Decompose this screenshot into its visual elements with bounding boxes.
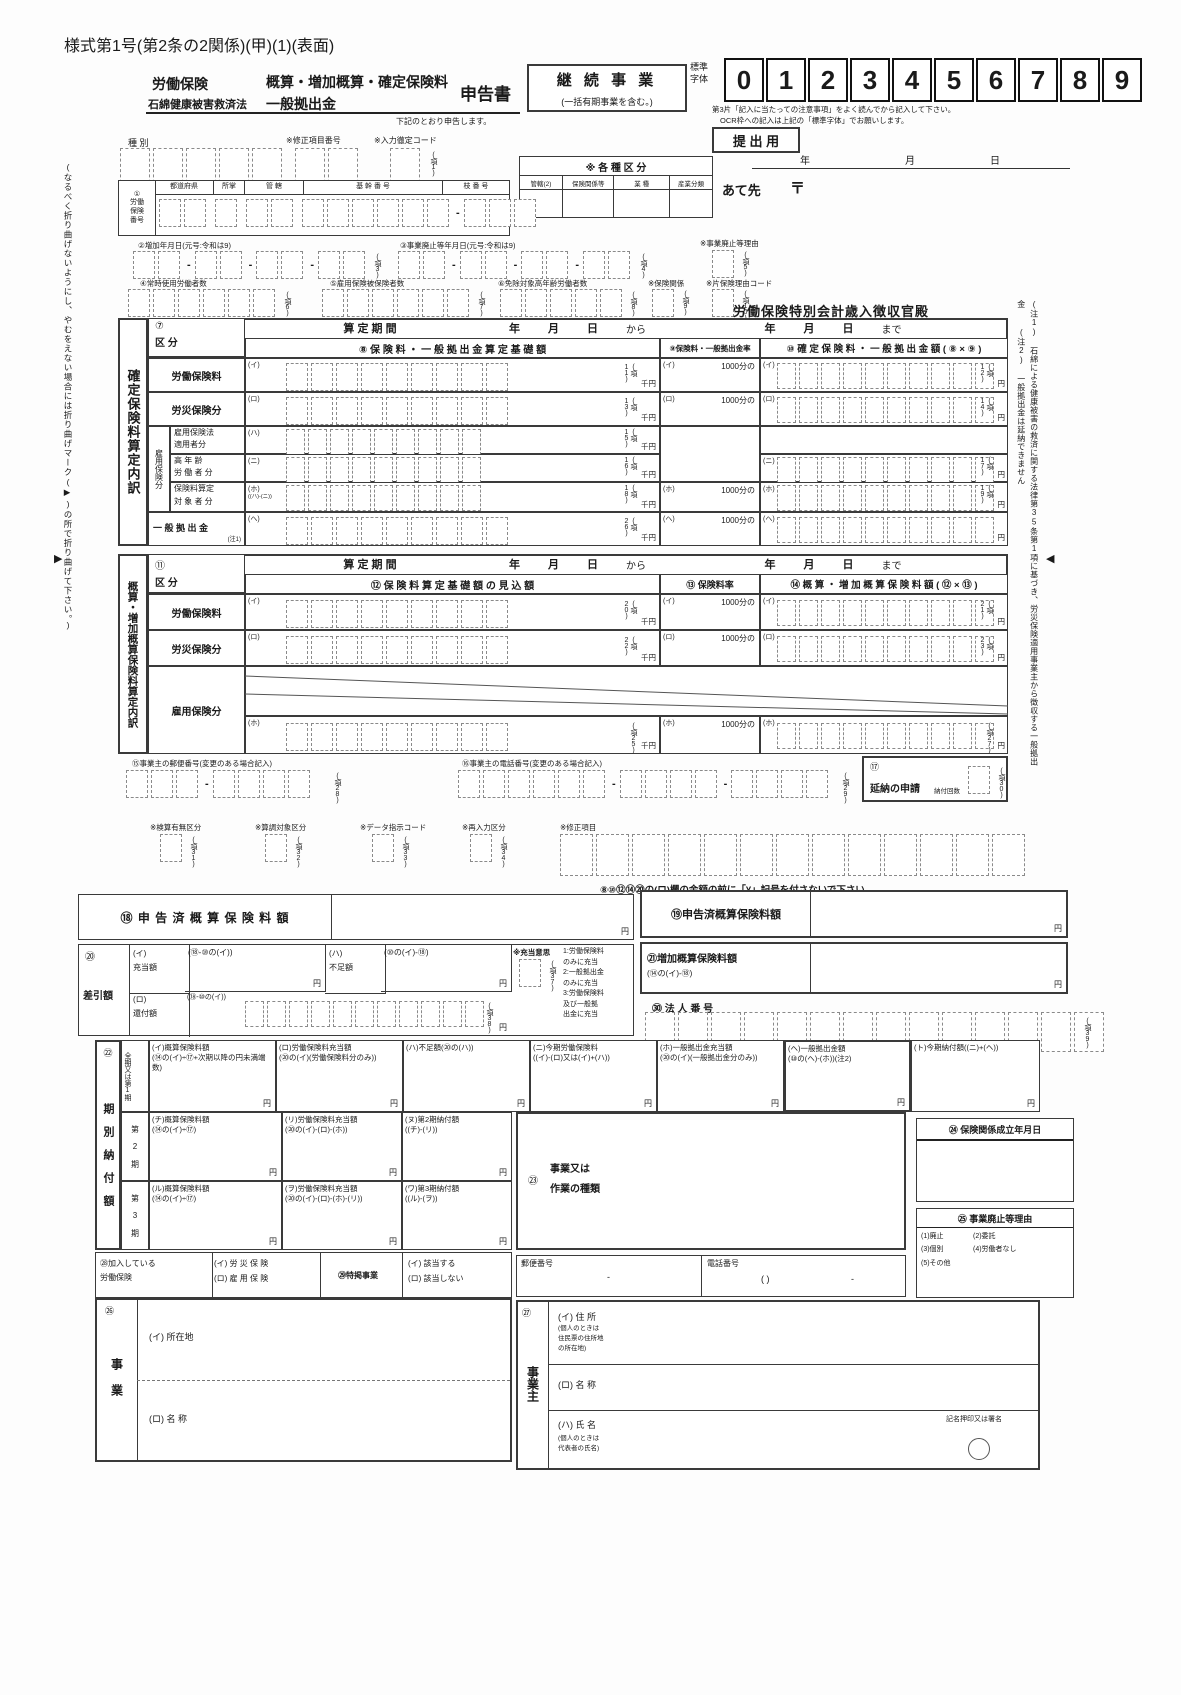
k11-amount-rosai-boxes[interactable] xyxy=(777,636,997,662)
exempt-elderly-label: ⑥免除対象高年齢労働者数 xyxy=(498,278,587,289)
header-underline xyxy=(146,112,520,114)
juto-ishi-box[interactable] xyxy=(519,959,544,987)
exempt-elderly-boxes[interactable] xyxy=(500,289,625,317)
postal-phone-strip: 郵便番号 - 電話番号 ( ) - xyxy=(516,1255,906,1297)
item34-mark: (項34) xyxy=(500,837,507,867)
k7-base-tekiyo-boxes[interactable] xyxy=(286,429,484,455)
box18-value[interactable]: 円 xyxy=(331,895,633,939)
col-kankatsu: 管 轄 xyxy=(245,181,304,194)
box21-label: ㉑増加概算保険料額 xyxy=(642,944,810,965)
k11-col12-header: ⑫ 保 険 料 算 定 基 礎 額 の 見 込 額 xyxy=(245,574,660,594)
juto-label-cell: (イ)充当額 xyxy=(129,945,190,994)
k11-base-koyou-boxes[interactable] xyxy=(286,723,511,751)
item5-mark: (項5) xyxy=(742,252,749,276)
deferred-payment-label: 延納の申請 xyxy=(870,780,920,795)
business-type-box: 継 続 事 業 (一括有期事業を含む。) xyxy=(527,64,687,112)
box26-num: ㉖ xyxy=(97,1300,137,1317)
diagonal-lines xyxy=(245,666,1008,716)
standard-font-label: 標準字体 xyxy=(690,62,708,85)
box25-label: ㉕ 事業廃止等理由 xyxy=(917,1209,1073,1228)
business-kind-box[interactable]: ㉓ 事業又は作業の種類 xyxy=(516,1112,906,1250)
sign-note: 記名押印又は署名 xyxy=(946,1414,1002,1424)
k11-period-header-left: 算 定 期 間 年月日から xyxy=(245,554,660,575)
item6-mark: (項6) xyxy=(284,292,291,316)
k11-row-koyou: 雇用保険分 xyxy=(148,666,245,754)
k11-col14-header: ⑭ 概 算 ・ 増 加 概 算 保 険 料 額 ( ⑫ × ⑬ ) xyxy=(760,574,1008,594)
abolition-reason-box[interactable]: ㉕ 事業廃止等理由 (1)廃止(3)個別(5)その他 (2)委託(4)労働者なし xyxy=(916,1208,1074,1298)
k7-row-konenrei: 高 年 齢労 働 者 分 xyxy=(170,454,245,482)
sancho-label: ※算調対象区分 xyxy=(255,822,306,833)
k7-rate-merged xyxy=(660,426,760,482)
increase-estimated-premium-box: ㉑増加概算保険料額 (⑭の(イ)-⑱) 円 xyxy=(640,942,1068,994)
employer-person-row[interactable]: (ハ) 氏 名 (個人のときは代表者の氏名) 記名押印又は署名 xyxy=(548,1410,1038,1468)
data-shiji-label: ※データ指示コード xyxy=(360,822,426,833)
joined-insurance-label: ㉘加入している労働保険 xyxy=(96,1253,213,1301)
employer-name-label: (ロ) 名 称 xyxy=(558,1378,596,1391)
item3-mark: (項3) xyxy=(374,254,381,278)
k7-row-labor: 労働保険料 xyxy=(148,358,245,392)
k11-base-rosai-boxes[interactable] xyxy=(286,636,511,664)
box24-label: ㉔ 保険関係成立年月日 xyxy=(917,1119,1073,1141)
business-type: 継 続 事 業 xyxy=(529,66,685,92)
col-prefecture: 都道府県 xyxy=(155,181,214,194)
declared-estimated-premium-box-19: ⑲申告済概算保険料額 円 xyxy=(640,890,1068,938)
k7-period-header-right: 年月日まで xyxy=(660,318,1006,339)
k7-base-konenrei-boxes[interactable] xyxy=(286,457,484,483)
kanpu-label-cell: (ロ)還付額 xyxy=(129,991,190,1037)
settled-premium-side: 確定保険料算定内訳 xyxy=(118,318,148,546)
box20-label: 差引額 xyxy=(79,963,129,1002)
sainyuryoku-box[interactable] xyxy=(470,834,495,862)
sancho-box[interactable] xyxy=(265,834,290,862)
col-kankatsu2: 管轄(2) xyxy=(520,176,562,190)
box21-sub: (⑭の(イ)-⑱) xyxy=(642,965,810,979)
abolition-date-label: ③事業廃止等年月日(元号:令和は9) xyxy=(400,240,515,251)
input-check-code-label: ※入力徹定コード xyxy=(374,135,437,146)
header-law: 石綿健康被害救済法 xyxy=(148,96,247,112)
sangyo-bunrui-input[interactable] xyxy=(670,190,712,219)
seal-circle xyxy=(968,1438,990,1460)
col-base-number: 基 幹 番 号 xyxy=(304,181,443,194)
juto-ishi-label: ※充当意思 xyxy=(513,947,550,958)
declare-note: 下記のとおり申告します。 xyxy=(396,116,491,127)
k11-period-header-right: 年月日まで xyxy=(660,554,1006,575)
col-gyoshu: 業 種 xyxy=(614,176,669,190)
box19-value[interactable]: 円 xyxy=(810,892,1066,936)
joined-insurance-row: ㉘加入している労働保険 (イ) 労 災 保 険(ロ) 雇 用 保 険 ㉙特掲事業… xyxy=(95,1252,512,1298)
k11-amount-koyou-boxes[interactable] xyxy=(777,723,997,749)
sainyuryoku-label: ※再入力区分 xyxy=(462,822,506,833)
deferred-payment-box: ⑰ 延納の申請 納付回数 (項30) xyxy=(862,756,1008,802)
estimated-premium-side: 概算・増加概算保険料算定内訳 xyxy=(118,554,148,754)
box18-label: ⑱ 申 告 済 概 算 保 険 料 額 xyxy=(79,895,332,939)
k11-kubun-label: 区 分 xyxy=(149,574,244,589)
juto-value[interactable]: (⑱-⑩の(イ))円 xyxy=(185,945,326,992)
item1-mark: (項1) xyxy=(430,152,437,176)
business-box: ㉖ 事 業 (イ) 所在地 (ロ) 名 称 xyxy=(95,1298,512,1462)
box27-side: 事業主 xyxy=(518,1319,548,1449)
box26-side: 事 業 xyxy=(97,1317,137,1437)
installment-r1-header: 全期又は第1期 xyxy=(121,1040,149,1112)
k7-row-tekiyo: 雇用保険法適用者分 xyxy=(170,426,245,454)
installment-side-label: 期 別 納 付 額 xyxy=(97,1062,119,1247)
shusei-komoku-label: ※修正項目 xyxy=(560,822,596,833)
k7-row-rosai: 労災保険分 xyxy=(148,392,245,426)
k11-amount-labor-boxes[interactable] xyxy=(777,600,997,626)
employer-postal-boxes[interactable]: - xyxy=(126,770,313,798)
k11-base-labor-boxes[interactable] xyxy=(286,600,511,628)
k7-base-santei-boxes[interactable] xyxy=(286,485,484,511)
k7-num: ⑦ xyxy=(149,319,244,334)
fold-mark-left: ▶ xyxy=(54,552,62,565)
k7-row-santei-taisho: 保険料算定対 象 者 分 xyxy=(170,482,245,512)
k11-num: ⑪ xyxy=(149,555,244,574)
item37-mark: (項37) xyxy=(549,961,556,991)
header-insurance: 労働保険 xyxy=(152,74,208,94)
header-main1: 概算・増加概算・確定保険料 xyxy=(266,72,448,92)
item32-mark: (項32) xyxy=(295,837,302,867)
kanpu-boxes[interactable] xyxy=(245,1001,487,1027)
payment-count-box[interactable] xyxy=(968,766,993,794)
box21-value[interactable]: 円 xyxy=(810,944,1066,992)
tokkei-options[interactable]: (イ) 該当する(ロ) 該当しない xyxy=(402,1253,517,1300)
kakushu-kubun-title: ※ 各 種 区 分 xyxy=(520,157,712,176)
employment-insured-label: ⑤雇用保険被保険者数 xyxy=(330,278,404,289)
item17-num: ⑰ xyxy=(870,760,879,773)
k7-row-koyou-side: 雇用保険分 xyxy=(148,426,170,512)
insurance-relation-label: ※保険関係 xyxy=(648,278,684,289)
k7-amount-tekiyo-empty xyxy=(760,426,1008,454)
gyoshu-input[interactable] xyxy=(614,190,669,219)
installment-r2-header: 第 2 期 xyxy=(121,1112,149,1181)
business-type-sub: (一括有期事業を含む。) xyxy=(529,92,685,110)
hoken-kankei-input[interactable] xyxy=(563,190,613,219)
installment-num: ㉒ xyxy=(97,1042,119,1062)
item28-mark: (項28) xyxy=(334,773,341,803)
juto-ishi-cell: ※充当意思 (項37) 1:労働保険料 のみに充当2:一般拠出金 のみに充当3:… xyxy=(511,945,634,1035)
k11-row-rosai: 労災保険分 xyxy=(148,630,245,666)
col-sangyo-bunrui: 産業分類 xyxy=(670,176,712,190)
business-address-label: (イ) 所在地 xyxy=(149,1330,194,1343)
shusei-komoku-boxes[interactable] xyxy=(560,834,1028,876)
box23-label: 事業又は作業の種類 xyxy=(550,1160,600,1200)
k7-kubun-label: 区 分 xyxy=(149,334,244,349)
regular-workers-label: ④常時使用労働者数 xyxy=(140,278,207,289)
k7-row-kyoshutsu: 一 般 拠 出 金 (注1) xyxy=(148,512,245,546)
submit-copy-badge: 提 出 用 xyxy=(712,127,800,153)
note2-text: (注2) 一般拠出金は延納できません xyxy=(1017,328,1026,485)
item38-mark: (項38) xyxy=(486,1003,493,1033)
k11-row-labor: 労働保険料 xyxy=(148,594,245,630)
k7-amount-santei-boxes[interactable] xyxy=(777,485,997,511)
date-month-label: 月 xyxy=(905,152,915,167)
ocr-note-2: OCR枠への記入は上記の「標準字体」でお願いします。 xyxy=(720,115,908,126)
item31-mark: (項31) xyxy=(190,837,197,867)
col-shosho: 所掌 xyxy=(214,181,245,194)
k7-col8-header: ⑧ 保 険 料 ・ 一 般 拠 出 金 算 定 基 礎 額 xyxy=(245,338,660,358)
k7-rate-labor[interactable] xyxy=(691,373,755,389)
employer-phone-boxes[interactable]: - - xyxy=(458,770,831,798)
k11-col13-header: ⑬ 保険料率 xyxy=(660,574,760,594)
abolition-date-boxes[interactable]: - - - xyxy=(398,251,633,279)
fold-mark-right: ◀ xyxy=(1046,552,1054,565)
increase-date-boxes[interactable]: - - - xyxy=(133,251,368,279)
k7-base-rosai-boxes[interactable] xyxy=(286,397,511,425)
standard-font-digits: 01 23 45 67 89 xyxy=(724,58,1144,102)
employment-insured-boxes[interactable] xyxy=(322,289,472,317)
data-shiji-box[interactable] xyxy=(372,834,397,862)
tokkei-label: ㉙特掲事業 xyxy=(314,1253,403,1297)
installment-r3-header: 第 3 期 xyxy=(121,1181,149,1250)
k7-col9-header: ⑨保険料・一般拠出金率 xyxy=(660,338,760,358)
fusoku-value[interactable]: (⑩の(イ)-⑱)円 xyxy=(381,945,512,992)
kanpu-value: (⑱-⑩の(イ)) (項38) 円 xyxy=(185,991,511,1035)
employer-person-label: (ハ) 氏 名 xyxy=(558,1418,596,1431)
difference-amount-block: ⑳ 差引額 (イ)充当額 (⑱-⑩の(イ))円 (ハ)不足額 (⑩の(イ)-⑱)… xyxy=(78,944,634,1036)
item30-mark: (項30) xyxy=(998,768,1005,798)
page-title: 様式第1号(第2条の2関係)(甲)(1)(表面) xyxy=(64,32,334,56)
item29-mark: (項29) xyxy=(842,773,849,803)
k7-base-kyoshutsu-boxes[interactable] xyxy=(286,517,511,545)
employer-box: ㉗ 事業主 (イ) 住 所 (個人のときは住民票の住所地の所在地) (ロ) 名 … xyxy=(516,1300,1040,1470)
juto-ishi-options: 1:労働保険料 のみに充当2:一般拠出金 のみに充当3:労働保険料 及び一般拠 … xyxy=(563,947,631,1021)
employer-address-row[interactable]: (イ) 住 所 (個人のときは住民票の住所地の所在地) xyxy=(548,1302,1038,1365)
date-year-label: 年 xyxy=(800,152,810,167)
phone-field[interactable]: 電話番号 ( ) - xyxy=(701,1256,905,1296)
item7-mark: (項7) xyxy=(478,292,485,316)
addressee-label: あて先 xyxy=(722,180,761,199)
labor-number-boxes[interactable]: - xyxy=(159,199,539,227)
k7-amount-rosai-boxes[interactable] xyxy=(777,397,997,423)
employer-address-note: (個人のときは住民票の住所地の所在地) xyxy=(558,1324,604,1353)
item33-mark: (項33) xyxy=(402,837,409,867)
rosai-koyou-options[interactable]: (イ) 労 災 保 険(ロ) 雇 用 保 険 xyxy=(208,1253,321,1300)
item8-mark: (項8) xyxy=(630,292,637,316)
box19-label: ⑲申告済概算保険料額 xyxy=(642,892,811,936)
ocr-note-1: 第3片「記入に当たっての注意事項」をよく読んでから記入して下さい。 xyxy=(712,104,955,115)
increase-date-label: ②増加年月日(元号:令和は9) xyxy=(138,240,231,251)
item9-mark: (項9) xyxy=(682,291,689,315)
postal-field[interactable]: 郵便番号 - xyxy=(517,1256,702,1296)
header-main2: 一般拠出金 xyxy=(266,94,336,114)
k7-col10-header: ⑩ 確 定 保 険 料 ・ 一 般 拠 出 金 額 ( ⑧ × ⑨ ) xyxy=(760,338,1008,358)
col-branch-number: 枝 番 号 xyxy=(443,181,509,194)
k7-amount-kyoshutsu-boxes[interactable] xyxy=(777,517,997,543)
k7-amount-labor-boxes[interactable] xyxy=(777,363,997,389)
employer-phone-label: ⑯事業主の電話番号(変更のある場合記入) xyxy=(462,758,602,769)
date-underline[interactable] xyxy=(752,168,1070,169)
employer-person-note: (個人のときは代表者の氏名) xyxy=(558,1434,599,1454)
k7-amount-konenrei-boxes[interactable] xyxy=(777,457,997,483)
employer-postal-label: ⑮事業主の郵便番号(変更のある場合記入) xyxy=(132,758,272,769)
regular-workers-boxes[interactable] xyxy=(128,289,278,317)
postal-mark: 〒 xyxy=(790,177,805,198)
declared-estimated-premium-box-18: ⑱ 申 告 済 概 算 保 険 料 額 円 xyxy=(78,894,634,940)
labor-insurance-declaration-form: 様式第1号(第2条の2関係)(甲)(1)(表面) 労働保険 石綿健康被害救済法 … xyxy=(0,0,1181,1695)
employer-name-row[interactable]: (ロ) 名 称 xyxy=(548,1364,1038,1411)
labor-insurance-number-label: ①労働保険番号 xyxy=(119,181,156,235)
k7-period-header-left: 算 定 期 間 年月日から xyxy=(245,318,660,339)
correction-item-number-label: ※修正項目番号 xyxy=(286,135,341,146)
kensan-box[interactable] xyxy=(160,834,185,862)
abolition-reason-box[interactable] xyxy=(712,250,737,278)
box23-num: ㉓ xyxy=(528,1172,538,1187)
single-insurance-reason-label: ※片保険理由コード xyxy=(706,278,772,289)
kensan-label: ※検算有無区分 xyxy=(150,822,201,833)
fusoku-label-cell: (ハ)不足額 xyxy=(325,945,386,994)
labor-insurance-number-table: ①労働保険番号 都道府県 所掌 管 轄 基 幹 番 号 枝 番 号 - xyxy=(118,180,510,236)
k7-base-labor-boxes[interactable] xyxy=(286,363,511,391)
date-day-label: 日 xyxy=(990,152,1000,167)
item4-mark: (項4) xyxy=(640,254,647,278)
form-name: 申告書 xyxy=(460,80,511,105)
kakushu-kubun-table: ※ 各 種 区 分 管轄(2) 保険関係等 業 種 産業分類 xyxy=(519,156,713,218)
box20-num: ⑳ xyxy=(79,945,129,963)
insurance-relation-date-box[interactable]: ㉔ 保険関係成立年月日 xyxy=(916,1118,1074,1202)
box27-num: ㉗ xyxy=(518,1302,548,1319)
business-name-label: (ロ) 名 称 xyxy=(149,1412,187,1425)
employer-address-label: (イ) 住 所 xyxy=(558,1310,596,1323)
left-margin-note: (なるべく折り曲げないようにし、やむをえない場合には折り曲げマーク(▶)の所で折… xyxy=(62,162,74,652)
installment-side: ㉒ 期 別 納 付 額 xyxy=(95,1040,121,1250)
col-hoken-kankei: 保険関係等 xyxy=(563,176,613,190)
right-margin-notes: (注1) 石綿による健康被害の救済に関する法律第35条第1項に基づき、労災保険適… xyxy=(1014,300,1040,770)
payment-count-label: 納付回数 xyxy=(934,785,960,795)
item39-mark: (項39) xyxy=(1084,1018,1091,1048)
abolition-reason-label: ※事業廃止等理由 xyxy=(700,238,759,249)
insurance-relation-box[interactable] xyxy=(652,289,677,317)
